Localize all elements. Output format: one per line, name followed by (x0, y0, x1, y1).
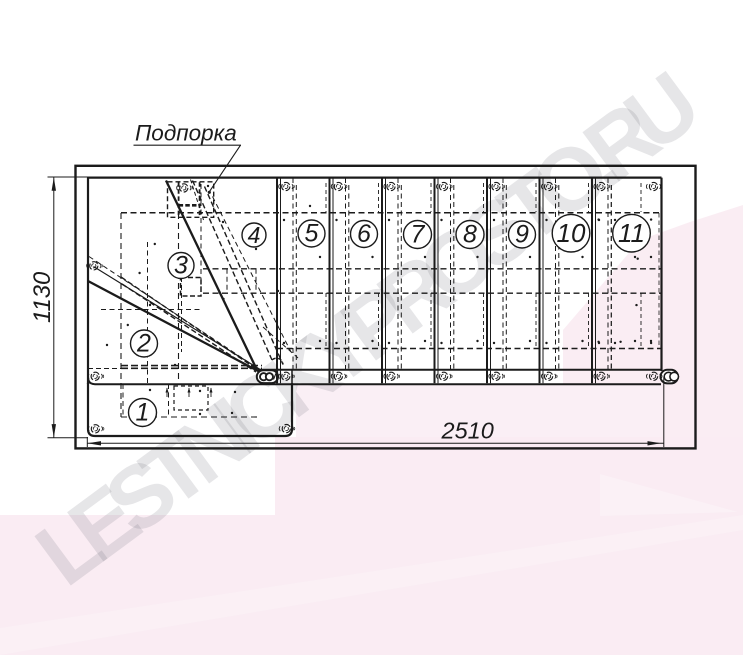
svg-text:4: 4 (248, 222, 261, 248)
svg-text:1130: 1130 (29, 271, 56, 323)
svg-text:Подпорка: Подпорка (135, 121, 237, 146)
svg-text:8: 8 (463, 221, 477, 249)
svg-text:6: 6 (357, 220, 371, 248)
svg-text:9: 9 (515, 221, 529, 249)
svg-text:2: 2 (136, 330, 151, 358)
svg-text:10: 10 (557, 218, 586, 248)
svg-text:3: 3 (174, 252, 188, 280)
svg-text:2510: 2510 (441, 418, 494, 444)
svg-text:5: 5 (305, 220, 319, 248)
svg-text:11: 11 (618, 218, 645, 248)
svg-text:1: 1 (136, 399, 150, 427)
svg-text:7: 7 (411, 221, 426, 249)
